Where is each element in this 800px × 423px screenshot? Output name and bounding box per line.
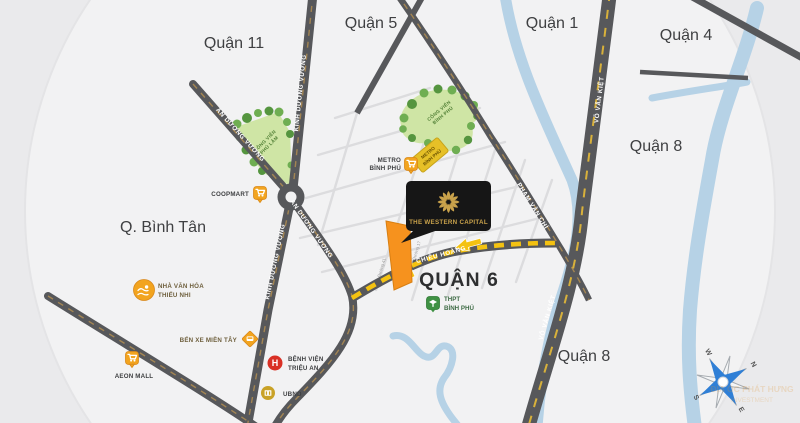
aeon-label: AEON MALL <box>115 373 154 380</box>
district-quan-1: Quận 1 <box>526 15 579 32</box>
swimmer-icon <box>134 280 155 301</box>
district-quan-8-south: Quận 8 <box>558 348 611 365</box>
location-map: CÔNG VIÊN PHÚ LÂM CÔNG VIÊN BÌNH PHÚ <box>0 0 800 423</box>
benh-vien-label-line2: TRIỆU AN <box>288 364 319 372</box>
thpt-label-line1: THPT <box>444 296 460 303</box>
project-name: THE WESTERN CAPITAL <box>409 219 488 226</box>
coopmart-label: COOPMART <box>211 191 249 198</box>
benh-vien-label-line1: BỆNH VIỆN <box>288 355 324 363</box>
svg-text:H: H <box>272 358 279 368</box>
district-quan-6: QUẬN 6 <box>419 267 499 291</box>
metro-label-line1: METRO <box>378 157 401 164</box>
ben-xe-label: BẾN XE MIỀN TÂY <box>180 337 238 344</box>
district-quan-8-north: Quận 8 <box>630 138 683 155</box>
district-binh-tan: Q. Bình Tân <box>120 219 206 236</box>
nha-van-hoa-label-line2: THIẾU NHI <box>158 292 191 299</box>
government-building-icon <box>261 386 275 400</box>
district-quan-5: Quận 5 <box>345 15 398 32</box>
district-quan-11: Quận 11 <box>204 35 264 52</box>
nha-van-hoa-label-line1: NHÀ VĂN HÓA <box>158 282 204 290</box>
thpt-label-line2: BÌNH PHÚ <box>444 304 474 312</box>
metro-label-line2: BÌNH PHÚ <box>369 164 401 172</box>
district-quan-4: Quận 4 <box>660 27 713 44</box>
hospital-icon: H <box>268 356 283 371</box>
svg-text:INVESTMENT: INVESTMENT <box>731 397 773 404</box>
svg-text:ĐỊA ỐC PHÁT HƯNG: ĐỊA ỐC PHÁT HƯNG <box>710 383 794 394</box>
ubnd-label: UBND <box>283 391 302 398</box>
poi-metro: METRO BÌNH PHÚ <box>369 157 417 174</box>
